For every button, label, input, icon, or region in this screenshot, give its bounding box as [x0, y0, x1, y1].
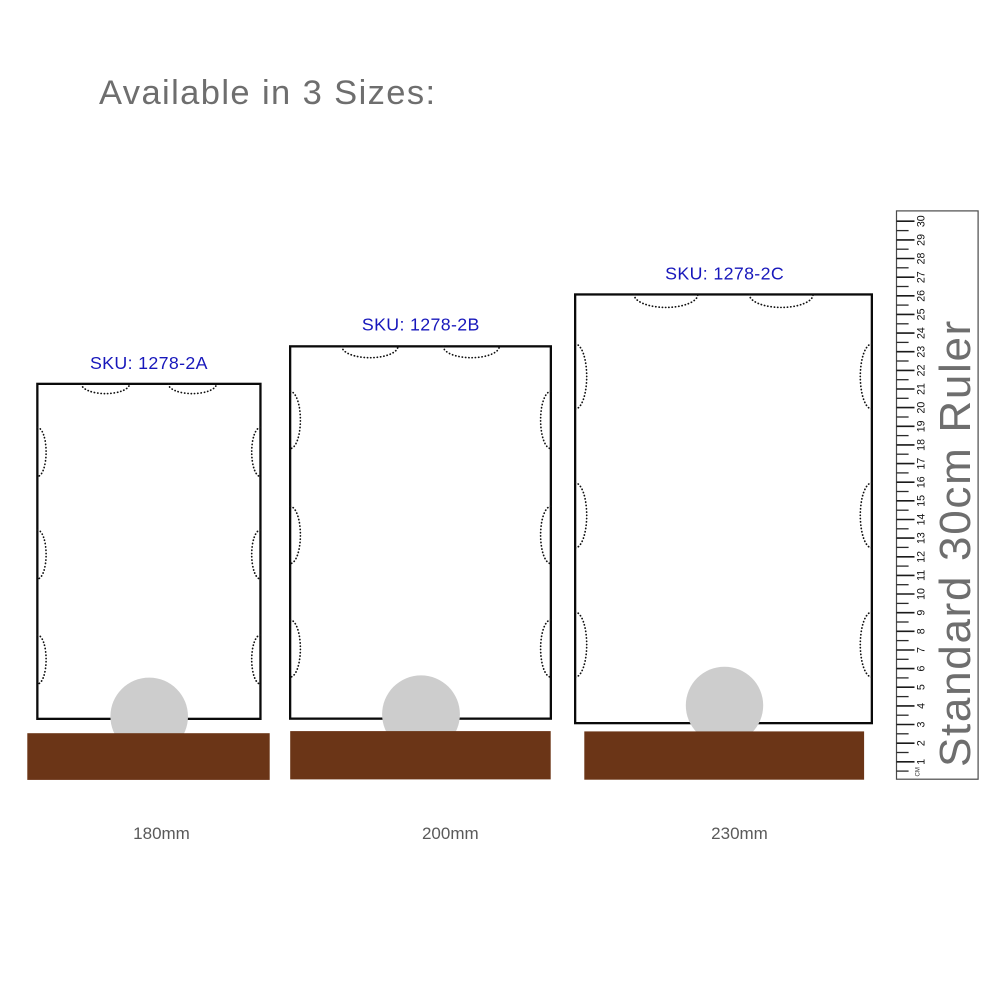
svg-text:Standard 30cm Ruler: Standard 30cm Ruler	[931, 319, 980, 767]
svg-text:Available in 3 Sizes:: Available in 3 Sizes:	[99, 74, 437, 112]
svg-text:15: 15	[916, 495, 928, 507]
svg-text:14: 14	[916, 514, 928, 526]
svg-text:SKU: 1278-2A: SKU: 1278-2A	[90, 353, 208, 373]
svg-text:26: 26	[916, 290, 928, 302]
svg-text:6: 6	[916, 666, 928, 672]
svg-text:10: 10	[916, 588, 928, 600]
svg-text:24: 24	[916, 327, 928, 339]
svg-text:18: 18	[916, 439, 928, 451]
svg-text:SKU: 1278-2C: SKU: 1278-2C	[665, 264, 784, 284]
svg-text:25: 25	[916, 308, 928, 320]
svg-text:29: 29	[916, 234, 928, 246]
svg-text:28: 28	[916, 253, 928, 265]
svg-text:20: 20	[916, 402, 928, 414]
svg-text:230mm: 230mm	[711, 824, 768, 843]
svg-text:1: 1	[916, 759, 928, 765]
svg-text:2: 2	[916, 740, 928, 746]
svg-text:27: 27	[916, 271, 928, 283]
svg-text:30: 30	[916, 215, 928, 227]
svg-text:21: 21	[916, 383, 928, 395]
svg-text:17: 17	[916, 458, 928, 470]
svg-text:12: 12	[916, 551, 928, 563]
svg-text:4: 4	[916, 703, 928, 709]
svg-text:CM: CM	[916, 767, 922, 776]
svg-text:SKU: 1278-2B: SKU: 1278-2B	[362, 315, 480, 335]
svg-text:5: 5	[916, 684, 928, 690]
svg-text:13: 13	[916, 532, 928, 544]
svg-text:8: 8	[916, 628, 928, 634]
svg-text:9: 9	[916, 610, 928, 616]
svg-text:3: 3	[916, 721, 928, 727]
svg-text:22: 22	[916, 364, 928, 376]
svg-text:7: 7	[916, 647, 928, 653]
svg-text:23: 23	[916, 346, 928, 358]
svg-text:200mm: 200mm	[422, 824, 479, 843]
svg-text:16: 16	[916, 476, 928, 488]
svg-text:11: 11	[916, 570, 928, 581]
svg-text:180mm: 180mm	[133, 824, 190, 843]
svg-text:19: 19	[916, 420, 928, 432]
